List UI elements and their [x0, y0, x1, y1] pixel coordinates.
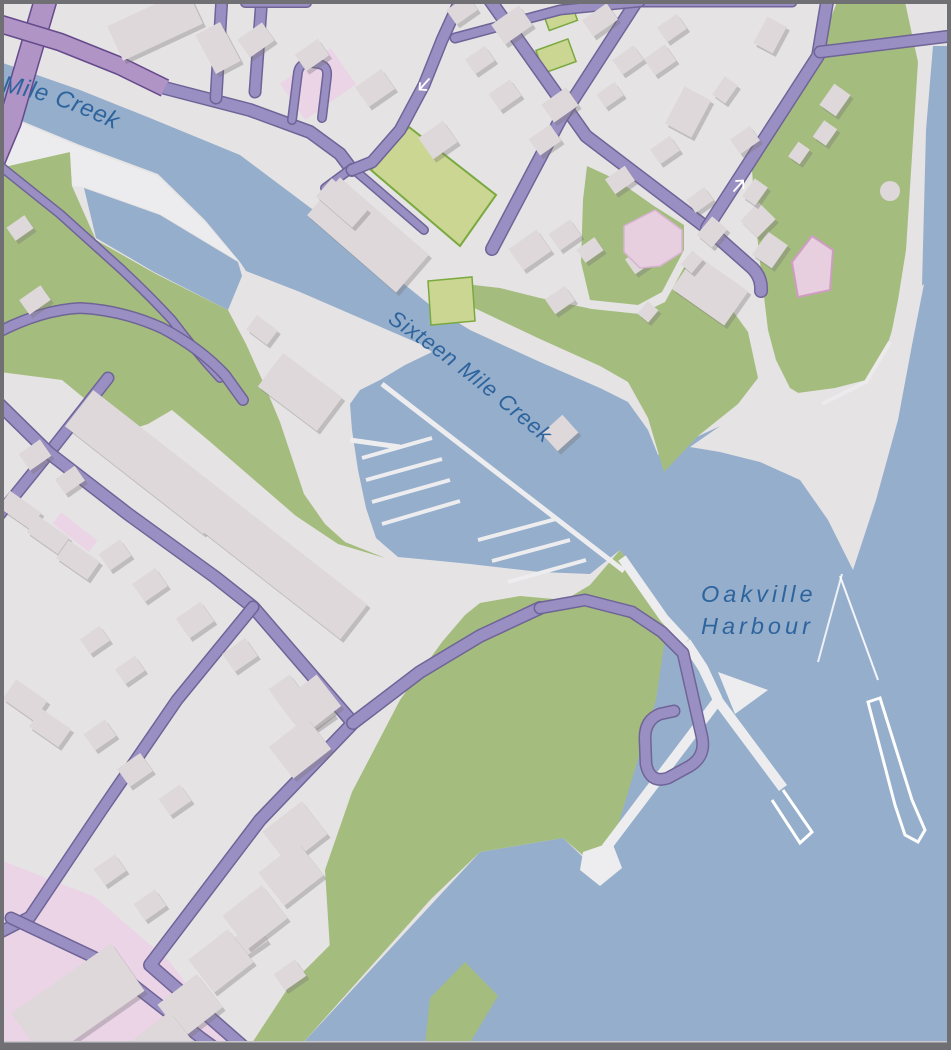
svg-text:Oakville: Oakville [701, 581, 817, 607]
svg-text:Harbour: Harbour [701, 613, 814, 639]
